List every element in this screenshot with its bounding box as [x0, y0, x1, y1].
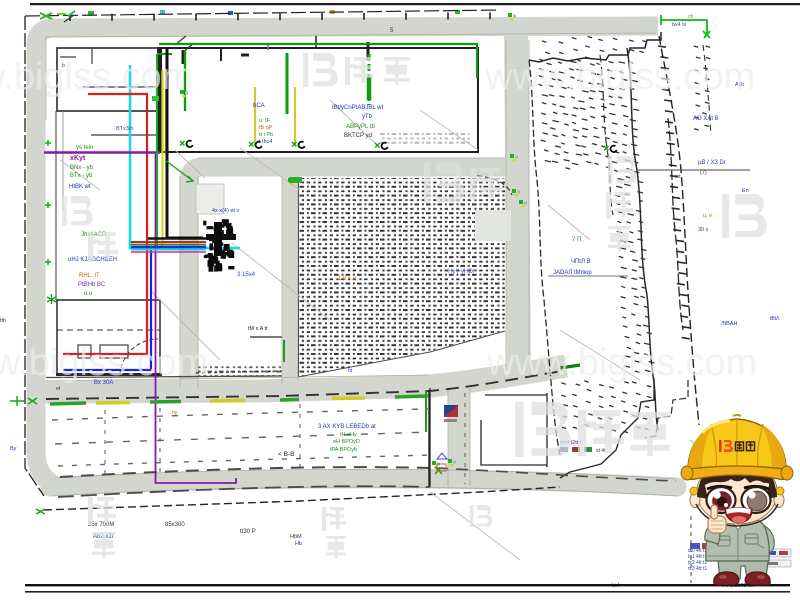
svg-text:tPA BPOyb: tPA BPOyb [330, 447, 357, 453]
svg-text:u: tF: u: tF [259, 118, 271, 124]
svg-text:tth: tth [0, 318, 6, 324]
svg-text:By: By [10, 446, 17, 452]
svg-text:< B-B: < B-B [278, 451, 294, 458]
svg-text:xt 4t: xt 4t [596, 448, 606, 454]
svg-text:RHL. IT: RHL. IT [79, 273, 100, 279]
svg-text:1 b x u: 1 b x u [338, 276, 356, 282]
svg-text:HbM: HbM [290, 534, 302, 540]
svg-text:ЧПtЛ B: ЧПtЛ B [571, 259, 591, 265]
svg-text:tB qP: tB qP [259, 125, 273, 131]
svg-text:Hb: Hb [295, 541, 302, 547]
svg-text:cb: cb [688, 14, 694, 20]
svg-text:4x x(4) et v: 4x x(4) et v [212, 208, 239, 214]
svg-text:JADAЛ tМпюр: JADAЛ tМпюр [553, 270, 592, 276]
svg-text:mt: mt [675, 174, 681, 180]
svg-text:tBtΛ: tBtΛ [770, 316, 780, 322]
svg-text:tt30 P: tt30 P [240, 529, 256, 535]
svg-text:BNx - yb: BNx - yb [70, 165, 94, 171]
svg-text:(7): (7) [700, 170, 707, 176]
svg-text:BKTCP yd: BKTCP yd [344, 133, 372, 139]
svg-text:BTx3/h: BTx3/h [116, 126, 133, 132]
svg-text:3 AX KYB LEBEDb at: 3 AX KYB LEBEDb at [318, 424, 376, 430]
svg-text:AO XAt B: AO XAt B [693, 116, 719, 122]
svg-text:PtBHb BC: PtBHb BC [78, 282, 106, 288]
svg-text:et: et [56, 386, 61, 392]
svg-text:t thc4: t thc4 [259, 139, 272, 145]
svg-text:tM x A tt: tM x A tt [248, 326, 268, 332]
svg-text:7 П: 7 П [572, 237, 581, 243]
svg-text:bCA: bCA [253, 103, 265, 109]
svg-text:yTb: yTb [362, 114, 373, 120]
svg-text:tH aHy: tH aHy [340, 432, 357, 438]
svg-text:30 x: 30 x [698, 227, 709, 233]
svg-text:ht: ht [348, 368, 353, 374]
svg-text:tx3 4tt t1: tx3 4tt t1 [688, 566, 707, 572]
svg-text:u. e: u. e [703, 213, 712, 219]
svg-text:HtBK wt: HtBK wt [69, 184, 91, 190]
svg-text:tt i Pb: tt i Pb [259, 132, 273, 138]
svg-text:tw4 tx: tw4 tx [672, 22, 687, 28]
svg-text:ЛtBAH: ЛtBAH [721, 321, 737, 327]
svg-text:HyY yHOr: HyY yHOr [448, 269, 475, 275]
svg-text:ny: ny [172, 410, 178, 416]
svg-text:xKyt: xKyt [70, 155, 86, 162]
svg-text:µB / X3 Dr: µB / X3 Dr [698, 160, 726, 166]
svg-text:ABPyPL tb: ABPyPL tb [346, 124, 375, 130]
svg-text:En: En [742, 188, 749, 194]
svg-text:eH BPOyD: eH BPOyD [333, 439, 360, 445]
svg-text:BTx - yb: BTx - yb [70, 173, 93, 179]
svg-text:tBt/yCnPtABJBL wt: tBt/yCnPtABJBL wt [332, 105, 383, 111]
svg-text:85x300: 85x300 [165, 522, 185, 528]
svg-text:ys tein: ys tein [76, 145, 93, 151]
svg-text:u u: u u [84, 291, 92, 297]
svg-text:3.15x4: 3.15x4 [237, 272, 256, 278]
